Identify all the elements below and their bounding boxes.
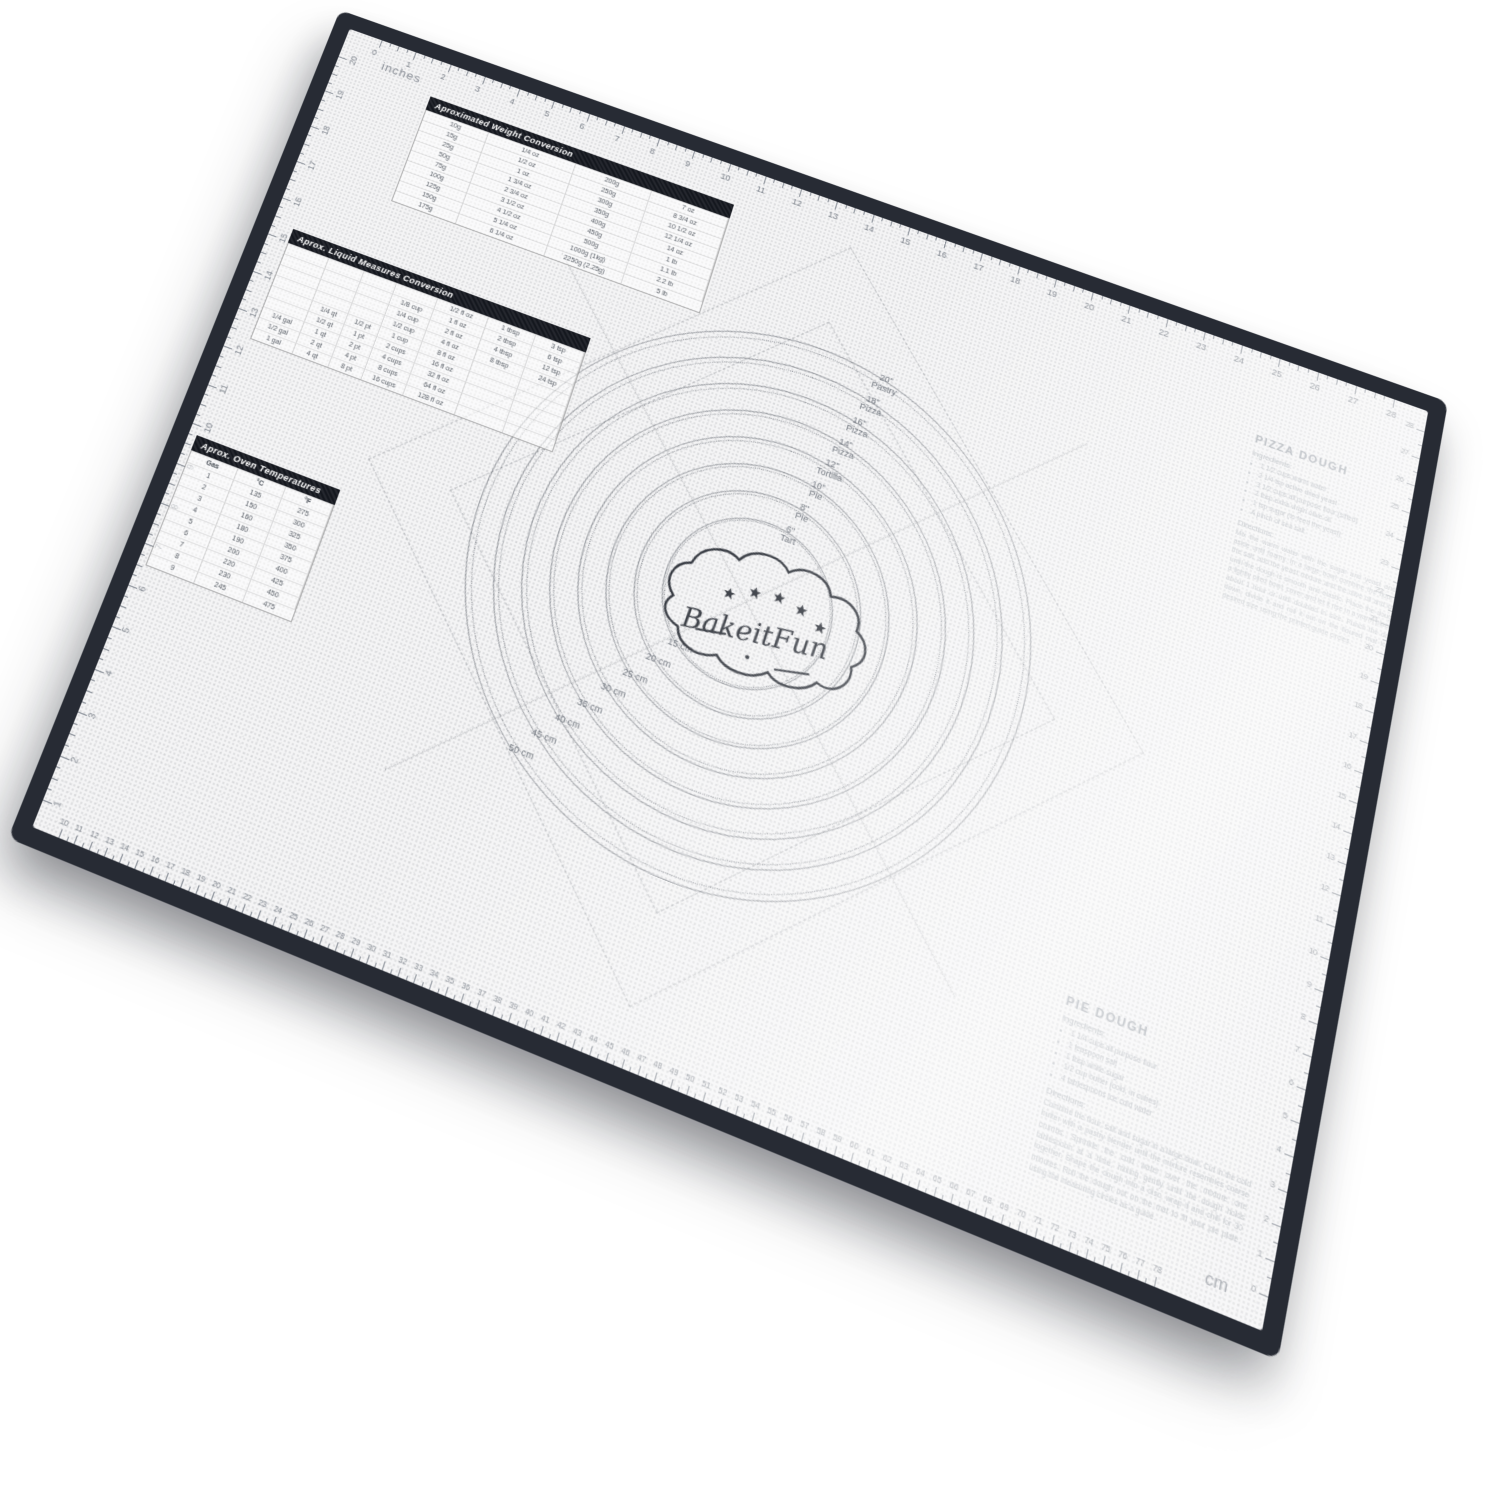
ruler-number-right: 0	[1250, 1285, 1256, 1295]
ruler-minortick-top	[890, 221, 892, 226]
ruler-minortick-right	[1418, 444, 1422, 446]
ruler-minortick-left	[212, 375, 216, 377]
ruler-number-bottom: 64	[915, 1167, 926, 1179]
product-photo-scene: inches cm 012345678910111213141516171819…	[0, 0, 1500, 1489]
ruler-number-bottom: 48	[652, 1060, 663, 1071]
ruler-minortick-bottom	[597, 1054, 599, 1059]
ruler-minortick-top	[389, 43, 391, 47]
ruler-minortick-left	[173, 473, 177, 475]
ruler-minortick-top	[466, 71, 469, 76]
ruler-number-right: 1	[1257, 1249, 1263, 1259]
ruler-number-bottom: 45	[604, 1040, 615, 1051]
ruler-minortick-bottom	[532, 1027, 534, 1032]
ruler-minortick-top	[1327, 376, 1329, 380]
ruler-minortick-top	[1194, 329, 1196, 333]
ruler-minortick-bottom	[374, 963, 377, 968]
ruler-number-top: 14	[863, 222, 875, 234]
ruler-tick-bottom	[900, 1173, 903, 1183]
ruler-tick-top	[1054, 279, 1057, 287]
mat-surface: inches cm 012345678910111213141516171819…	[32, 29, 1428, 1331]
ruler-minortick-bottom	[296, 931, 299, 936]
ruler-tick-right	[1360, 740, 1369, 744]
ruler-number-bottom: 36	[460, 982, 471, 993]
ruler-minortick-top	[809, 192, 811, 196]
ruler-tick-left	[338, 56, 346, 60]
ruler-minortick-top	[596, 117, 598, 121]
ruler-tick-bottom	[967, 1200, 970, 1210]
ruler-number-bottom: 58	[816, 1127, 827, 1139]
ruler-minortick-bottom	[406, 975, 409, 980]
ruler-number-bottom: 53	[733, 1093, 744, 1105]
ruler-number-top: 18	[1009, 274, 1021, 286]
ruler-number-bottom: 18	[180, 868, 191, 879]
ruler-minortick-top	[475, 74, 477, 78]
ruler-minortick-bottom	[842, 1154, 844, 1159]
ruler-minortick-bottom	[1077, 1250, 1079, 1255]
ruler-number-left: 6	[136, 584, 148, 593]
ruler-minortick-left	[307, 135, 311, 137]
ruler-minortick-top	[640, 132, 643, 137]
ruler-minortick-top	[1138, 309, 1140, 313]
ruler-number-bottom: 28	[335, 931, 346, 942]
ruler-tick-top	[621, 126, 624, 134]
ruler-tick-bottom	[335, 942, 339, 951]
ruler-number-bottom: 65	[932, 1174, 943, 1186]
ruler-minortick-bottom	[234, 905, 237, 910]
ruler-minortick-left	[181, 453, 185, 455]
ruler-minortick-top	[527, 92, 529, 96]
ruler-minortick-left	[272, 224, 276, 226]
ruler-minortick-top	[720, 161, 722, 165]
ruler-number-bottom: 55	[766, 1107, 777, 1119]
ruler-tick-bottom	[817, 1139, 820, 1149]
ruler-minortick-left	[286, 188, 290, 190]
ruler-minortick-left	[116, 616, 120, 619]
ruler-minortick-top	[1270, 355, 1272, 359]
ruler-number-left: 10	[202, 422, 215, 435]
ruler-number-bottom: 27	[319, 924, 330, 935]
ruler-minortick-top	[963, 247, 965, 253]
ruler-minortick-left	[246, 289, 252, 292]
ruler-number-left: 16	[291, 196, 304, 208]
ruler-minortick-right	[1367, 726, 1371, 729]
ruler-minortick-bottom	[280, 924, 283, 929]
ruler-minortick-bottom	[203, 893, 206, 898]
ruler-minortick-top	[972, 250, 974, 254]
ruler-number-bottom: 59	[832, 1134, 843, 1146]
ruler-tick-bottom	[933, 1187, 936, 1197]
ruler-number-bottom: 14	[119, 843, 130, 854]
ruler-minortick-left	[275, 215, 281, 218]
ruler-minortick-top	[827, 199, 829, 203]
ruler-number-bottom: 34	[429, 969, 440, 980]
ruler-tick-bottom	[509, 1013, 513, 1022]
ruler-tick-bottom	[226, 898, 230, 907]
ruler-number-bottom: 52	[717, 1087, 728, 1099]
ruler-minortick-right	[1345, 847, 1350, 850]
ruler-number-bottom: 24	[272, 905, 283, 916]
ruler-minortick-left	[335, 65, 339, 67]
ruler-tick-top	[482, 77, 486, 85]
ruler-tick-right	[1259, 1293, 1268, 1298]
ruler-minortick-left	[124, 595, 128, 598]
ruler-minortick-left	[149, 533, 153, 535]
ruler-tick-top	[1165, 319, 1168, 327]
ruler-minortick-bottom	[219, 899, 222, 904]
liquid-measures-table: Aprox. Liquid Measures Conversion 1/2 fl…	[250, 229, 591, 453]
ruler-minortick-left	[56, 766, 60, 769]
ruler-tick-right	[1309, 1020, 1318, 1025]
ruler-minortick-right	[1328, 941, 1333, 944]
ruler-number-top: 22	[1158, 327, 1170, 339]
ruler-number-bottom: 17	[165, 861, 176, 872]
ruler-minortick-bottom	[312, 937, 315, 942]
ruler-minortick-bottom	[661, 1080, 663, 1085]
ruler-minortick-left	[216, 365, 222, 368]
cm-unit-label: cm	[1203, 1268, 1230, 1298]
ruler-tick-bottom	[702, 1092, 706, 1102]
ruler-minortick-bottom	[959, 1202, 961, 1207]
ruler-minortick-top	[999, 260, 1001, 266]
ruler-tick-right	[1411, 456, 1419, 460]
ruler-number-top: 28	[1385, 408, 1397, 421]
ruler-number-top: 23	[1195, 340, 1207, 352]
ruler-number-bottom: 57	[799, 1120, 810, 1132]
ruler-tick-right	[1284, 1154, 1293, 1159]
ruler-minortick-left	[242, 298, 246, 300]
ruler-minortick-left	[73, 722, 77, 725]
ruler-tick-top	[1278, 359, 1281, 367]
ruler-minortick-left	[257, 261, 261, 263]
ruler-minortick-top	[773, 180, 775, 184]
ruler-minortick-left	[304, 143, 310, 146]
ruler-number-bottom: 71	[1033, 1215, 1044, 1227]
ruler-number-bottom: 44	[588, 1034, 599, 1045]
ruler-minortick-top	[1308, 369, 1310, 373]
ruler-minortick-bottom	[358, 956, 361, 961]
ruler-minortick-top	[667, 142, 669, 146]
ruler-minortick-bottom	[469, 1001, 471, 1006]
ruler-tick-bottom	[461, 994, 465, 1003]
ruler-number-bottom: 15	[134, 849, 145, 860]
ruler-tick-right	[1354, 769, 1363, 773]
ruler-minortick-right	[1356, 786, 1360, 789]
ruler-minortick-top	[1073, 286, 1075, 292]
ruler-number-bottom: 33	[413, 963, 424, 974]
ruler-tick-left	[193, 423, 202, 427]
ruler-number-right: 13	[1325, 852, 1335, 863]
ruler-tick-right	[1349, 800, 1358, 804]
ruler-minortick-top	[1298, 366, 1300, 372]
ruler-tick-bottom	[800, 1132, 804, 1142]
ruler-number-left: 18	[320, 124, 332, 136]
ruler-minortick-left	[69, 733, 75, 736]
ruler-number-top: 5	[543, 109, 551, 119]
ruler-tick-bottom	[1137, 1270, 1140, 1280]
ruler-tick-top	[551, 101, 555, 109]
ruler-tick-top	[1091, 292, 1094, 300]
ruler-tick-bottom	[621, 1059, 625, 1069]
ruler-minortick-left	[103, 647, 109, 650]
ruler-tick-top	[763, 176, 766, 184]
ruler-minortick-left	[189, 433, 193, 435]
ruler-minortick-bottom	[66, 837, 69, 842]
ruler-minortick-bottom	[188, 886, 191, 891]
ruler-minortick-right	[1372, 697, 1376, 700]
ruler-minortick-bottom	[678, 1087, 680, 1092]
ruler-minortick-bottom	[111, 855, 114, 860]
ruler-minortick-top	[899, 224, 901, 228]
ruler-tick-bottom	[984, 1207, 987, 1217]
ruler-number-bottom: 39	[508, 1001, 519, 1012]
ruler-minortick-left	[219, 355, 223, 357]
ruler-tick-top	[692, 151, 695, 159]
ruler-tick-bottom	[556, 1033, 560, 1042]
ruler-minortick-right	[1413, 471, 1417, 473]
ruler-minortick-left	[108, 637, 112, 640]
ruler-tick-bottom	[605, 1052, 609, 1062]
ruler-number-right: 16	[1342, 761, 1352, 771]
ruler-tick-bottom	[74, 835, 78, 844]
ruler-number-right: 7	[1294, 1046, 1300, 1056]
ruler-number-right: 3	[1270, 1180, 1276, 1190]
ruler-tick-bottom	[524, 1020, 528, 1029]
ruler-number-bottom: 31	[381, 950, 392, 961]
ruler-number-top: 0	[371, 48, 379, 58]
ruler-minortick-bottom	[421, 982, 423, 987]
logo-brand-text: BakeitFun	[679, 600, 830, 667]
ruler-number-bottom: 26	[303, 918, 314, 929]
ruler-number-top: 17	[973, 261, 985, 273]
ruler-tick-bottom	[134, 860, 138, 869]
ruler-tick-right	[1278, 1188, 1287, 1193]
ruler-number-bottom: 62	[882, 1154, 893, 1166]
ruler-minortick-top	[675, 145, 678, 150]
ruler-minortick-bottom	[1026, 1229, 1028, 1234]
ruler-tick-bottom	[89, 842, 93, 851]
ruler-tick-right	[1370, 681, 1379, 685]
ruler-minortick-top	[791, 186, 793, 190]
ruler-minortick-left	[264, 243, 268, 245]
ruler-tick-right	[1365, 710, 1374, 714]
ruler-number-top: 16	[936, 248, 948, 260]
ruler-number-bottom: 37	[476, 988, 487, 999]
ruler-tick-left	[238, 308, 247, 312]
ruler-tick-bottom	[1051, 1235, 1054, 1245]
ruler-tick-right	[1314, 988, 1323, 993]
ruler-minortick-bottom	[694, 1093, 696, 1098]
ruler-tick-bottom	[589, 1046, 593, 1056]
ruler-tick-bottom	[319, 936, 323, 945]
ruler-minortick-top	[684, 148, 686, 152]
ruler-tick-bottom	[304, 929, 308, 938]
ruler-minortick-top	[954, 244, 956, 248]
ruler-minortick-top	[535, 95, 538, 100]
ruler-minortick-right	[1267, 1277, 1272, 1280]
ruler-number-left: 20	[347, 55, 359, 66]
ruler-minortick-right	[1361, 756, 1365, 759]
ruler-number-top: 13	[827, 209, 839, 221]
ruler-tick-bottom	[180, 879, 184, 888]
ruler-minortick-top	[500, 83, 503, 88]
ruler-number-top: 21	[1120, 314, 1132, 326]
ruler-tick-top	[1393, 399, 1396, 408]
ruler-tick-bottom	[1001, 1214, 1004, 1224]
ruler-number-right: 18	[1353, 702, 1363, 712]
ruler-minortick-bottom	[1043, 1236, 1045, 1241]
ruler-tick-bottom	[366, 955, 370, 964]
ruler-minortick-bottom	[1128, 1271, 1130, 1276]
ruler-tick-right	[1332, 892, 1341, 896]
ruler-tick-bottom	[917, 1180, 920, 1190]
ruler-number-top: 9	[684, 159, 691, 169]
ruler-minortick-left	[52, 777, 58, 780]
ruler-minortick-left	[204, 394, 208, 396]
ruler-minortick-left	[300, 152, 304, 154]
ruler-minortick-left	[157, 513, 161, 515]
ruler-number-bottom: 63	[898, 1161, 909, 1173]
ruler-minortick-left	[227, 336, 231, 338]
ruler-minortick-top	[431, 58, 434, 63]
ruler-tick-bottom	[351, 949, 355, 958]
ruler-minortick-bottom	[437, 988, 439, 993]
ruler-minortick-top	[458, 68, 460, 72]
ruler-minortick-top	[1120, 302, 1122, 306]
ruler-tick-bottom	[1154, 1277, 1157, 1287]
ruler-minortick-left	[200, 404, 206, 407]
ruler-number-top: 26	[1309, 380, 1321, 393]
ruler-tick-top	[871, 215, 874, 223]
ruler-tick-bottom	[1034, 1228, 1037, 1238]
ruler-minortick-top	[854, 208, 856, 213]
ruler-minortick-bottom	[565, 1041, 567, 1046]
oven-temperatures-table: Aprox. Oven Temperatures Gas°C°F11352752…	[145, 435, 340, 622]
ruler-number-right: 8	[1300, 1013, 1306, 1023]
ruler-tick-left	[311, 126, 319, 130]
ruler-number-bottom: 10	[59, 818, 70, 829]
ruler-minortick-top	[632, 129, 634, 133]
ruler-number-right: 9	[1306, 980, 1312, 989]
ruler-tick-left	[253, 270, 262, 274]
ruler-tick-right	[1326, 924, 1335, 928]
ruler-tick-bottom	[429, 981, 433, 990]
ruler-number-top: 12	[791, 197, 803, 209]
ruler-minortick-top	[397, 46, 400, 51]
ruler-minortick-top	[1176, 322, 1178, 326]
ruler-minortick-top	[570, 108, 573, 113]
ruler-minortick-bottom	[516, 1021, 518, 1026]
ruler-number-bottom: 40	[524, 1008, 535, 1019]
ruler-minortick-top	[710, 157, 713, 162]
ruler-minortick-left	[332, 73, 338, 76]
ruler-tick-bottom	[382, 961, 386, 970]
ruler-minortick-left	[235, 317, 239, 319]
ruler-number-right: 2	[1263, 1214, 1269, 1224]
ruler-number-bottom: 38	[492, 995, 503, 1006]
ruler-minortick-top	[1027, 270, 1029, 274]
ruler-minortick-left	[86, 690, 92, 693]
ruler-minortick-top	[605, 120, 608, 125]
ruler-minortick-right	[1292, 1138, 1297, 1141]
ruler-number-bottom: 68	[982, 1195, 993, 1207]
ruler-minortick-bottom	[759, 1120, 761, 1125]
ruler-minortick-top	[509, 86, 511, 90]
ruler-minortick-top	[614, 123, 616, 127]
ruler-tick-right	[1406, 483, 1414, 487]
ruler-minortick-right	[1316, 1006, 1321, 1009]
ruler-number-bottom: 32	[397, 956, 408, 967]
oven-table-body: Gas°C°F113527521503003160325418035051903…	[145, 450, 334, 622]
ruler-minortick-bottom	[809, 1140, 811, 1145]
ruler-minortick-left	[250, 280, 254, 282]
ruler-minortick-top	[845, 205, 847, 209]
ruler-minortick-bottom	[343, 950, 346, 955]
ruler-number-bottom: 22	[242, 893, 253, 904]
ruler-number-bottom: 70	[1016, 1209, 1027, 1221]
ruler-number-right: 19	[1359, 672, 1368, 682]
ruler-minortick-right	[1333, 910, 1338, 913]
ruler-minortick-top	[1289, 362, 1291, 366]
ruler-minortick-top	[440, 62, 442, 66]
ruler-number-top: 25	[1271, 367, 1283, 380]
ruler-minortick-bottom	[1060, 1243, 1062, 1248]
ruler-minortick-left	[169, 483, 175, 486]
ruler-number-bottom: 29	[350, 937, 361, 948]
ruler-tick-bottom	[104, 848, 108, 857]
ruler-tick-left	[325, 91, 333, 95]
ruler-number-top: 19	[1046, 287, 1058, 299]
ruler-number-right: 27	[1400, 448, 1409, 457]
ruler-minortick-bottom	[96, 849, 99, 854]
ruler-minortick-top	[755, 173, 757, 177]
ruler-minortick-right	[1377, 667, 1381, 670]
ruler-minortick-left	[65, 744, 69, 747]
ruler-number-bottom: 30	[366, 943, 377, 954]
ruler-minortick-top	[544, 98, 546, 102]
ruler-minortick-bottom	[975, 1209, 977, 1214]
ruler-number-bottom: 35	[444, 975, 455, 986]
ruler-minortick-top	[926, 234, 928, 240]
ruler-minortick-bottom	[792, 1134, 794, 1139]
inches-unit-label: inches	[380, 60, 424, 86]
ruler-minortick-left	[231, 327, 237, 330]
ruler-number-top: 8	[649, 146, 656, 156]
ruler-minortick-left	[290, 179, 296, 182]
ruler-tick-top	[1203, 332, 1206, 340]
ruler-minortick-bottom	[327, 943, 330, 948]
ruler-tick-top	[447, 65, 451, 73]
ruler-minortick-top	[1251, 349, 1253, 353]
ruler-minortick-top	[1036, 273, 1038, 279]
ruler-minortick-left	[321, 100, 325, 102]
ruler-tick-top	[835, 202, 838, 210]
ruler-number-top: 7	[613, 134, 620, 144]
ruler-tick-left	[223, 346, 232, 350]
ruler-minortick-top	[1157, 316, 1159, 320]
ruler-minortick-left	[82, 701, 86, 704]
ruler-minortick-top	[1185, 325, 1187, 331]
ruler-tick-right	[1338, 861, 1347, 865]
ruler-number-bottom: 69	[999, 1202, 1010, 1214]
ruler-tick-left	[282, 197, 291, 201]
ruler-minortick-top	[1110, 299, 1112, 305]
pie-dough-recipe: PIE DOUGH Ingredients: 1 1/4 cups all pu…	[1028, 994, 1271, 1258]
ruler-tick-left	[297, 161, 306, 165]
weight-conversion-table: Aproximated Weight Conversion 10g1/4 oz2…	[391, 96, 734, 313]
ruler-minortick-bottom	[1009, 1222, 1011, 1227]
ruler-minortick-top	[936, 237, 938, 241]
ruler-minortick-bottom	[127, 861, 130, 866]
